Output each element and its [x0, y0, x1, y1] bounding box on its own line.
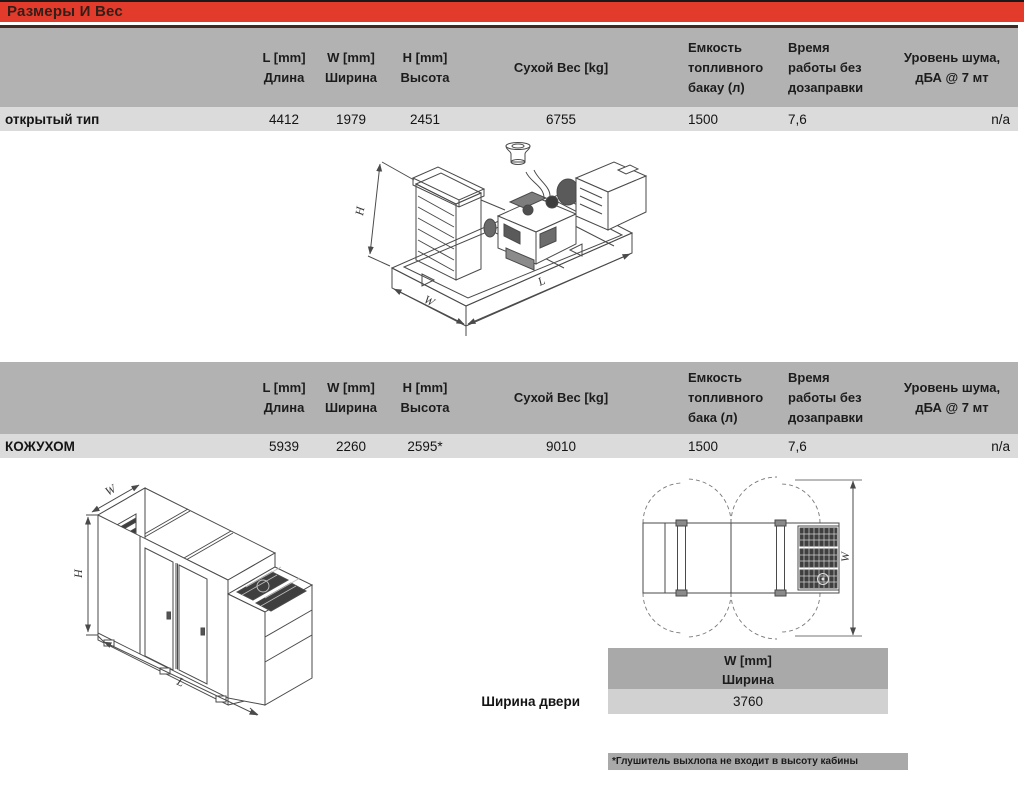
- footnote: *Глушитель выхлопа не входит в высоту ка…: [608, 753, 908, 770]
- col-dry-weight-label: Сухой Вес [kg]: [466, 388, 656, 408]
- door-width-label: Ширина двери: [420, 694, 580, 709]
- col-height: H [mm] Высота: [384, 362, 466, 434]
- col-noise-line1: Уровень шума,: [886, 48, 1018, 68]
- value-dry-weight: 6755: [466, 112, 656, 127]
- col-runtime-line3: дозаправки: [788, 78, 886, 98]
- open-genset-drawing: H W L: [330, 140, 670, 350]
- value-runtime: 7,6: [786, 439, 886, 454]
- page-title: Размеры И Вес: [7, 3, 123, 20]
- col-fuel-capacity: Емкость топливного бака (л): [656, 362, 786, 434]
- col-length-unit: L [mm]: [250, 48, 318, 68]
- canopy-genset-drawing: W H L: [60, 470, 360, 732]
- col-fuel-line2: топливного: [688, 388, 786, 408]
- col-noise-line2: дБА @ 7 мт: [886, 68, 1018, 88]
- header-spacer: [0, 28, 250, 107]
- col-noise-line2: дБА @ 7 мт: [886, 398, 1018, 418]
- col-runtime-line1: Время: [788, 368, 886, 388]
- col-dry-weight-label: Сухой Вес [kg]: [466, 58, 656, 78]
- col-width-name: Ширина: [318, 398, 384, 418]
- col-length-name: Длина: [250, 68, 318, 88]
- col-length-unit: L [mm]: [250, 378, 318, 398]
- top-view-drawing: W: [620, 470, 910, 645]
- dim-label-h-canopy: H: [71, 568, 85, 579]
- col-noise-line1: Уровень шума,: [886, 378, 1018, 398]
- value-fuel-capacity: 1500: [656, 439, 786, 454]
- open-type-table: L [mm] Длина W [mm] Ширина H [mm] Высота…: [0, 25, 1018, 131]
- col-dry-weight: Сухой Вес [kg]: [466, 362, 656, 434]
- col-runtime-line3: дозаправки: [788, 408, 886, 428]
- value-noise: n/a: [886, 439, 1018, 454]
- col-fuel-line1: Емкость: [688, 368, 786, 388]
- door-width-unit: W [mm]: [608, 651, 888, 670]
- door-width-value: 3760: [608, 689, 888, 714]
- col-height: H [mm] Высота: [384, 28, 466, 107]
- door-width-header: W [mm] Ширина: [608, 648, 888, 689]
- col-runtime-line2: работы без: [788, 388, 886, 408]
- header-spacer: [0, 362, 250, 434]
- door-width-name: Ширина: [608, 670, 888, 689]
- col-height-unit: H [mm]: [384, 48, 466, 68]
- col-width-name: Ширина: [318, 68, 384, 88]
- dim-label-w-canopy: W: [103, 481, 120, 499]
- col-fuel-line3: бака (л): [688, 408, 786, 428]
- value-length: 5939: [250, 439, 318, 454]
- col-noise: Уровень шума, дБА @ 7 мт: [886, 362, 1018, 434]
- value-width: 1979: [318, 112, 384, 127]
- canopy-row: КОЖУХОМ 5939 2260 2595* 9010 1500 7,6 n/…: [0, 434, 1018, 458]
- value-height: 2451: [384, 112, 466, 127]
- col-width-unit: W [mm]: [318, 378, 384, 398]
- value-width: 2260: [318, 439, 384, 454]
- open-type-table-header: L [mm] Длина W [mm] Ширина H [mm] Высота…: [0, 25, 1018, 107]
- dim-label-w-topview: W: [838, 551, 852, 562]
- col-width: W [mm] Ширина: [318, 28, 384, 107]
- col-dry-weight: Сухой Вес [kg]: [466, 28, 656, 107]
- row-label: КОЖУХОМ: [0, 439, 250, 454]
- col-length: L [mm] Длина: [250, 362, 318, 434]
- row-label: открытый тип: [0, 112, 250, 127]
- col-noise: Уровень шума, дБА @ 7 мт: [886, 28, 1018, 107]
- value-noise: n/a: [886, 112, 1018, 127]
- value-runtime: 7,6: [786, 112, 886, 127]
- col-width: W [mm] Ширина: [318, 362, 384, 434]
- col-fuel-line2: топливного: [688, 58, 786, 78]
- value-fuel-capacity: 1500: [656, 112, 786, 127]
- value-height: 2595*: [384, 439, 466, 454]
- value-dry-weight: 9010: [466, 439, 656, 454]
- col-height-name: Высота: [384, 398, 466, 418]
- canopy-table-header: L [mm] Длина W [mm] Ширина H [mm] Высота…: [0, 362, 1018, 434]
- col-length: L [mm] Длина: [250, 28, 318, 107]
- col-fuel-line1: Емкость: [688, 38, 786, 58]
- col-runtime: Время работы без дозаправки: [786, 28, 886, 107]
- col-width-unit: W [mm]: [318, 48, 384, 68]
- dim-label-l-open: L: [535, 273, 548, 289]
- dim-label-w-open: W: [422, 292, 438, 309]
- canopy-table: L [mm] Длина W [mm] Ширина H [mm] Высота…: [0, 362, 1018, 458]
- datasheet-page: Размеры И Вес L [mm] Длина W [mm] Ширина…: [0, 0, 1024, 785]
- col-runtime-line2: работы без: [788, 58, 886, 78]
- col-fuel-capacity: Емкость топливного бакау (л): [656, 28, 786, 107]
- col-height-unit: H [mm]: [384, 378, 466, 398]
- col-runtime-line1: Время: [788, 38, 886, 58]
- col-fuel-line3: бакау (л): [688, 78, 786, 98]
- open-type-row: открытый тип 4412 1979 2451 6755 1500 7,…: [0, 107, 1018, 131]
- col-length-name: Длина: [250, 398, 318, 418]
- door-width-table: W [mm] Ширина 3760: [608, 648, 888, 714]
- col-height-name: Высота: [384, 68, 466, 88]
- dim-label-h-open: H: [352, 204, 368, 217]
- section-banner: Размеры И Вес: [0, 0, 1024, 22]
- value-length: 4412: [250, 112, 318, 127]
- col-runtime: Время работы без дозаправки: [786, 362, 886, 434]
